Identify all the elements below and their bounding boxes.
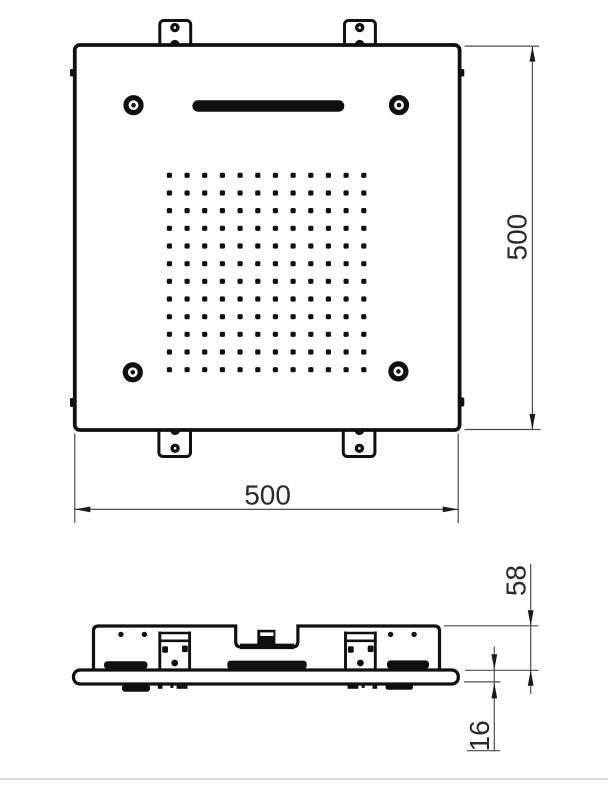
svg-text:500: 500 [244,480,291,511]
svg-text:58: 58 [501,565,532,596]
svg-text:500: 500 [501,214,532,261]
svg-text:16: 16 [464,720,495,751]
